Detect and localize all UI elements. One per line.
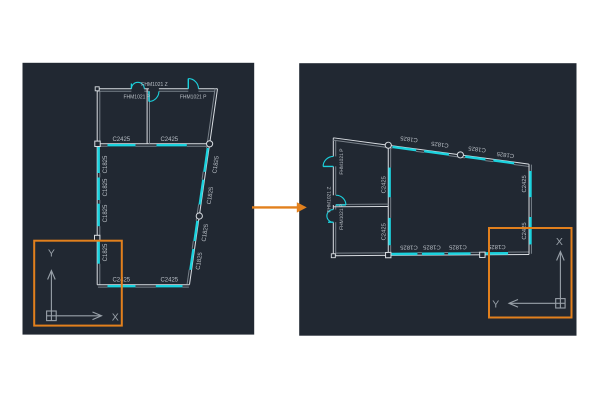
svg-text:C2425: C2425 <box>160 278 178 284</box>
svg-text:C1825: C1825 <box>103 243 109 261</box>
svg-text:C1825: C1825 <box>487 243 505 249</box>
svg-text:FHM1021 Z: FHM1021 Z <box>326 187 332 213</box>
svg-text:Y: Y <box>48 248 55 260</box>
svg-text:C2425: C2425 <box>522 222 528 240</box>
svg-text:C2425: C2425 <box>381 175 387 193</box>
svg-text:C2425: C2425 <box>522 175 528 193</box>
svg-text:FHM1021 P: FHM1021 P <box>123 95 150 101</box>
svg-text:C2425: C2425 <box>381 222 387 240</box>
svg-text:FHM1021 Z: FHM1021 Z <box>141 82 167 88</box>
svg-text:C2425: C2425 <box>160 137 178 143</box>
svg-text:X: X <box>112 311 119 323</box>
svg-text:FHM1021 P: FHM1021 P <box>339 148 345 175</box>
svg-text:X: X <box>556 236 563 248</box>
svg-text:FHM1021 P: FHM1021 P <box>339 203 345 230</box>
svg-text:C2425: C2425 <box>112 137 130 143</box>
svg-text:C1825: C1825 <box>103 155 109 173</box>
svg-text:C1825: C1825 <box>103 178 109 196</box>
svg-text:C1825: C1825 <box>103 204 109 222</box>
svg-text:Y: Y <box>492 299 499 311</box>
svg-text:C1825: C1825 <box>399 244 417 250</box>
svg-text:C1825: C1825 <box>422 243 440 249</box>
svg-text:FHM1021 P: FHM1021 P <box>180 95 207 101</box>
svg-text:C1825: C1825 <box>448 243 466 249</box>
